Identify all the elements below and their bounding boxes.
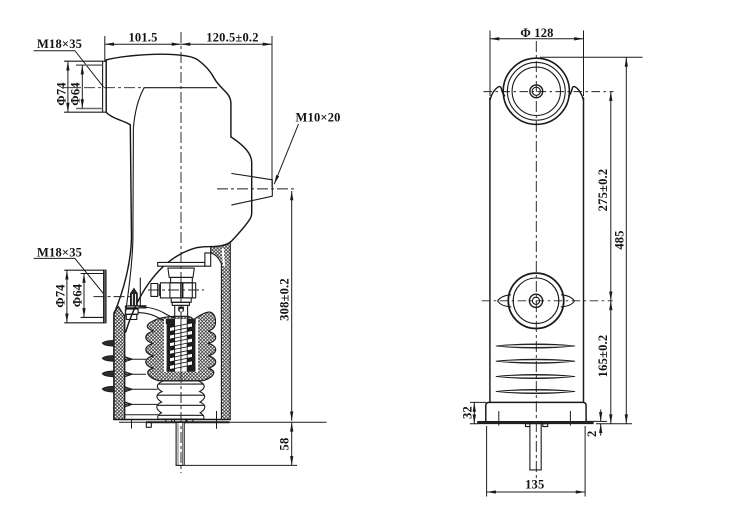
svg-text:101.5: 101.5 <box>128 31 157 45</box>
svg-text:32: 32 <box>460 406 474 419</box>
svg-text:M18×35: M18×35 <box>37 37 82 51</box>
svg-text:135: 135 <box>525 478 544 492</box>
svg-text:Φ64: Φ64 <box>70 283 84 307</box>
svg-text:M18×35: M18×35 <box>37 245 82 259</box>
svg-text:Φ64: Φ64 <box>69 82 83 106</box>
svg-text:485: 485 <box>612 230 626 249</box>
svg-text:165±0.2: 165±0.2 <box>596 335 610 378</box>
svg-text:Φ74: Φ74 <box>54 284 68 308</box>
svg-text:Φ74: Φ74 <box>55 82 69 106</box>
svg-text:2: 2 <box>585 431 599 437</box>
svg-text:275±0.2: 275±0.2 <box>596 169 610 212</box>
svg-text:308±0.2: 308±0.2 <box>278 278 292 321</box>
svg-text:58: 58 <box>278 438 292 451</box>
svg-text:M10×20: M10×20 <box>296 111 341 125</box>
svg-text:Φ 128: Φ 128 <box>520 26 553 40</box>
svg-text:120.5±0.2: 120.5±0.2 <box>206 31 258 45</box>
